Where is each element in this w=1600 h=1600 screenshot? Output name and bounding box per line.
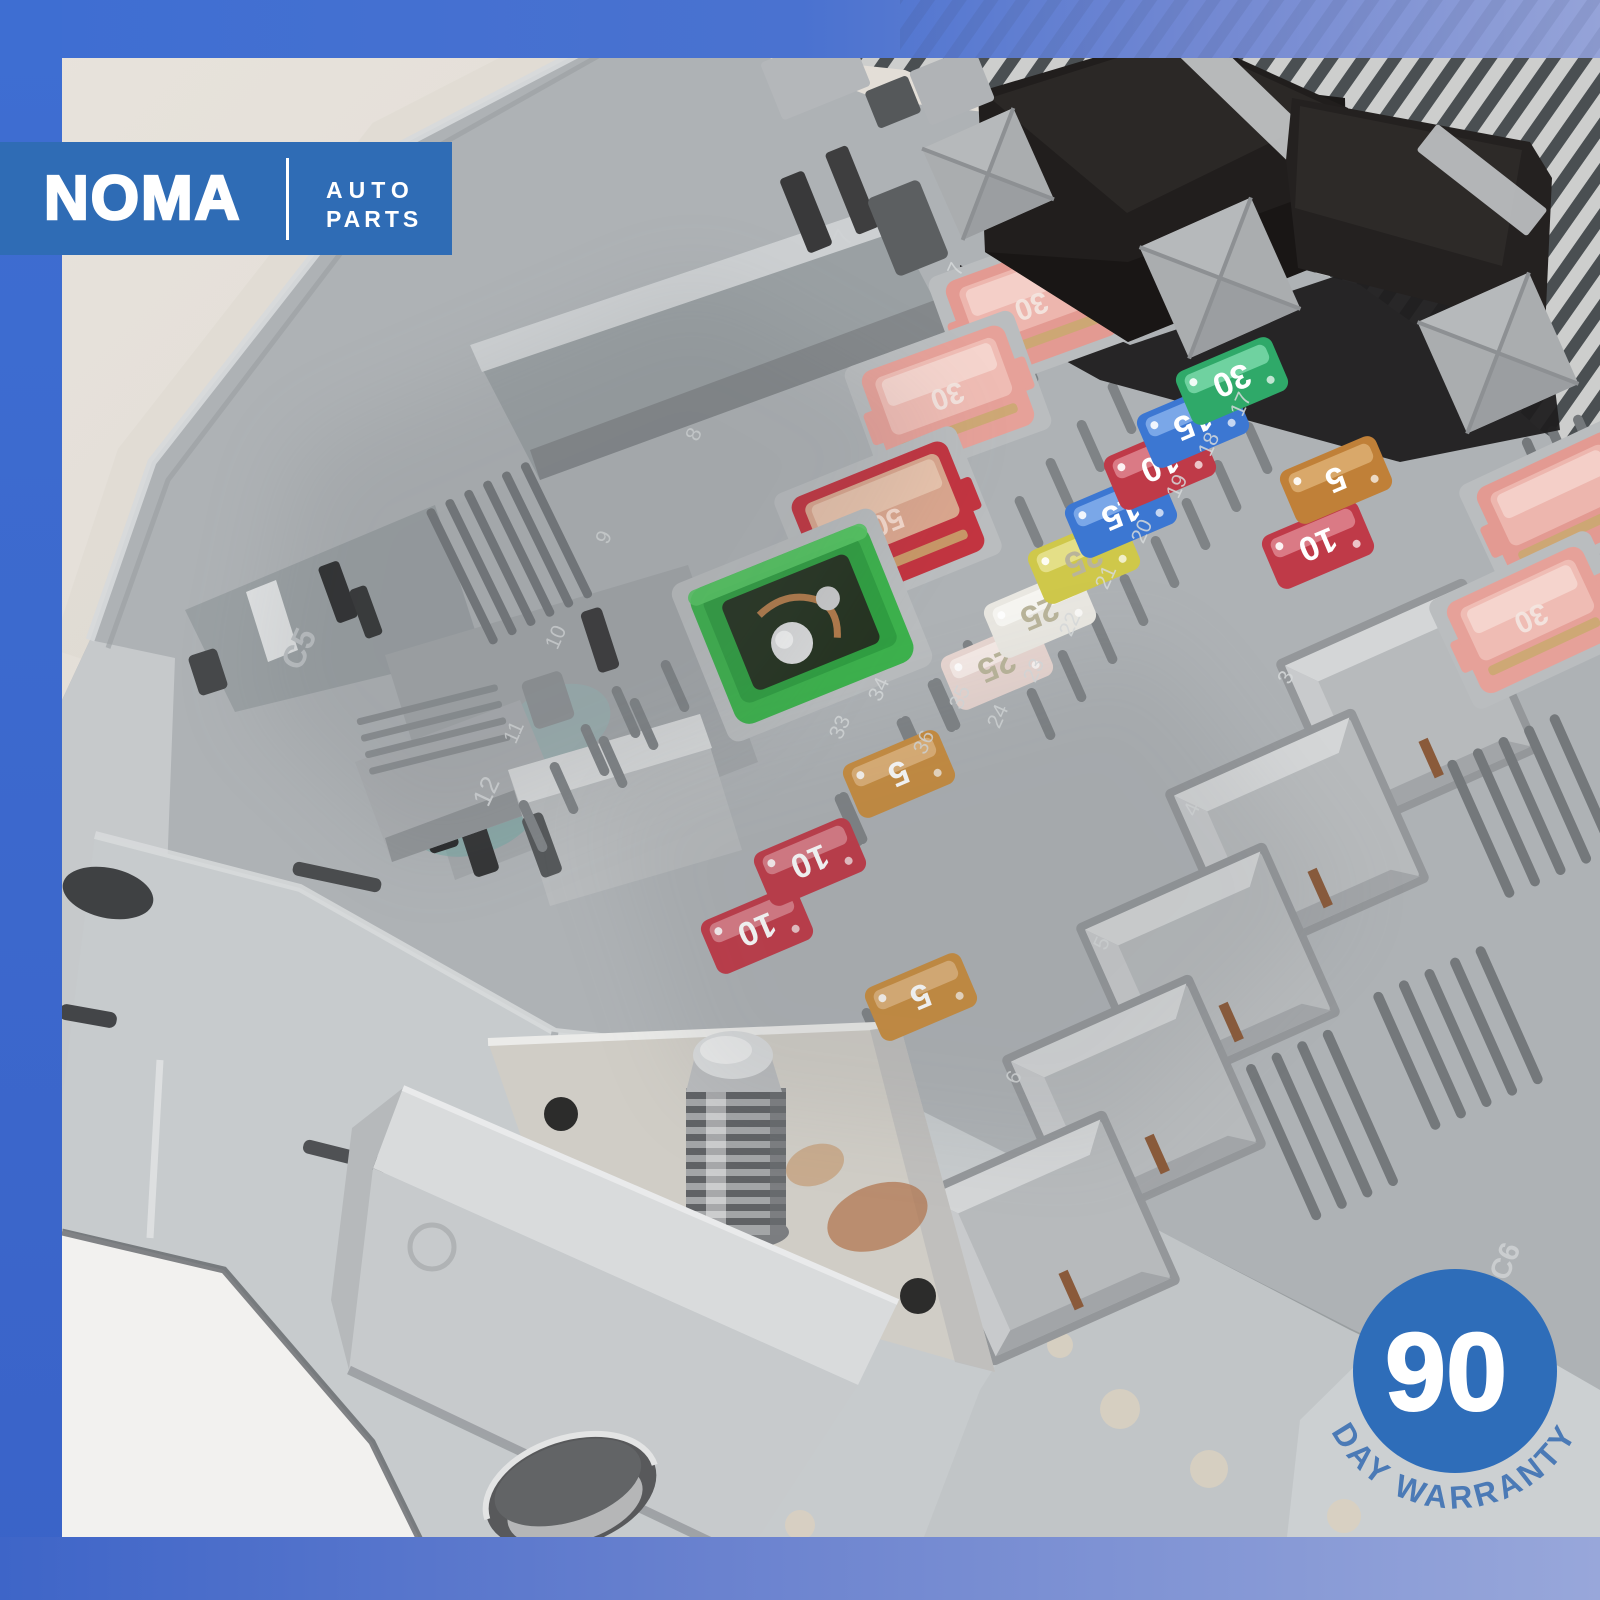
svg-text:PARTS: PARTS [326, 206, 422, 232]
svg-text:NOMA: NOMA [44, 164, 241, 233]
svg-text:AUTO: AUTO [326, 177, 415, 203]
svg-text:90: 90 [1385, 1311, 1507, 1434]
